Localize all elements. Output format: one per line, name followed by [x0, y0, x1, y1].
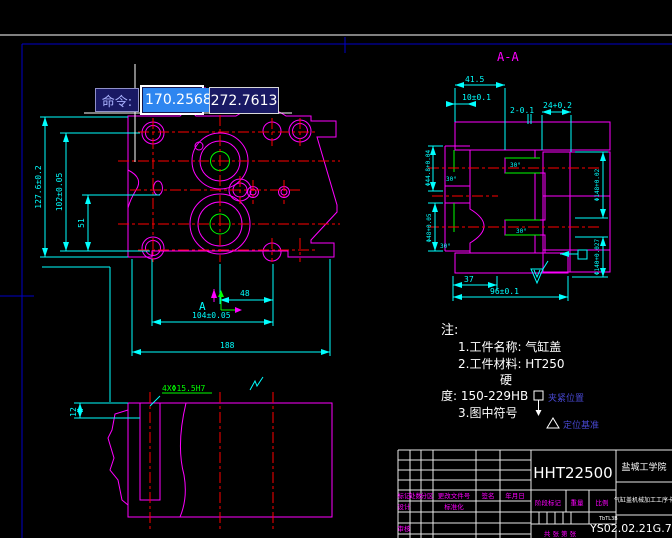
note-line-4: 度: 150-229HB — [441, 388, 528, 403]
dim-104: 104±0.05 — [192, 311, 231, 320]
coordinate-x-input[interactable]: 170.2568 — [140, 85, 204, 115]
dim-37: 37 — [464, 275, 474, 284]
dim-96: 96±0.1 — [490, 287, 519, 296]
section-title: A-A — [497, 50, 519, 64]
surface-finish-icon — [250, 377, 263, 390]
bottom-view-dimensions: 12 4XΦ15.5H7 — [69, 377, 263, 418]
clamp-legend-label: 夹紧位置 — [548, 392, 584, 404]
row-design: 设计 — [398, 502, 412, 511]
dim-41-5: 41.5 — [465, 75, 484, 84]
coordinate-y-input[interactable]: 272.7613 — [209, 87, 279, 114]
angle-label: 30° — [516, 228, 527, 235]
bottom-view-geometry — [108, 392, 332, 532]
clamp-legend-icon — [534, 391, 543, 416]
datum-legend-label: 定位基准 — [563, 419, 599, 431]
dim-10: 10±0.1 — [462, 93, 491, 102]
dim-holes: 4XΦ15.5H7 — [162, 384, 206, 393]
note-line-2: 2.工件材料: HT250 — [458, 357, 565, 371]
notes-block: 注: 1.工件名称: 气缸盖 2.工件材料: HT250 硬 度: 150-22… — [441, 323, 599, 431]
dim-127: 127.6±0.2 — [34, 165, 43, 209]
main-view-geometry — [128, 108, 337, 262]
coordinate-x-value[interactable]: 170.2568 — [143, 88, 214, 112]
dim-188: 188 — [220, 341, 235, 350]
angle-label: 30° — [510, 162, 521, 169]
main-view-dimensions: 127.6±0.2 102±0.05 51 48 104±0.05 188 A — [34, 87, 330, 402]
notes-heading: 注: — [441, 323, 458, 338]
cad-application-window: 127.6±0.2 102±0.05 51 48 104±0.05 188 A … — [0, 0, 672, 538]
part-code: HHT22500 — [533, 464, 612, 482]
dim-48: 48 — [240, 289, 250, 298]
scale-label: 比例 — [596, 498, 609, 507]
note-line-1: 1.工件名称: 气缸盖 — [458, 339, 561, 354]
doc-title: 气缸盖机械加工工序卡 — [614, 496, 672, 504]
clamp-position-icon — [560, 250, 587, 259]
dim-d140: Φ140+0.027 — [594, 239, 601, 276]
coordinate-y-value[interactable]: 272.7613 — [211, 93, 278, 109]
org-name: 盐城工学院 — [621, 461, 666, 473]
col-sign: 签名 — [482, 491, 495, 500]
dim-d44-8: Φ44.8+0.04 — [425, 150, 432, 187]
row-check: 审核 — [398, 524, 412, 533]
dim-12: 12 — [69, 407, 78, 417]
section-view-dimensions: 41.5 10±0.1 2-0.1 24+0.2 Φ44.8+0.04 Φ48+… — [425, 75, 608, 301]
row-standard: 标准化 — [444, 502, 464, 511]
dim-51: 51 — [77, 218, 86, 228]
col-file: 更改文件号 — [438, 491, 471, 500]
stage-label: 阶段标记 — [535, 498, 562, 507]
section-arrow-label: A — [199, 300, 206, 313]
datum-legend-icon — [547, 418, 559, 428]
drawing-number: YS02.02.21G.7 — [589, 522, 672, 535]
drawing-canvas: 127.6±0.2 102±0.05 51 48 104±0.05 188 A … — [0, 0, 672, 538]
note-line-5: 3.图中符号 — [458, 405, 517, 420]
col-date: 年月日 — [505, 491, 525, 500]
weight-label: 重量 — [571, 499, 585, 507]
command-prompt-label: 命令: — [95, 88, 139, 112]
command-prompt-text: 命令: — [102, 91, 132, 110]
dim-102: 102±0.05 — [55, 173, 64, 212]
note-line-3: 硬 — [500, 373, 512, 387]
angle-label: 30° — [446, 176, 457, 183]
dim-d148: Φ148+0.02 — [594, 168, 601, 201]
angle-label: 30° — [440, 243, 451, 250]
col-zone: 分区 — [421, 491, 435, 500]
title-block: 标记 处数 分区 更改文件号 签名 年月日 设计 标准化 审核 阶段标记 重量 … — [398, 450, 672, 538]
dim-24: 24+0.2 — [543, 101, 572, 110]
ucs-icon — [218, 290, 242, 313]
sheet-label: 共 张 第 张 — [544, 529, 577, 538]
dim-d48: Φ48+0.05 — [426, 213, 433, 242]
dim-2: 2-0.1 — [510, 106, 534, 115]
